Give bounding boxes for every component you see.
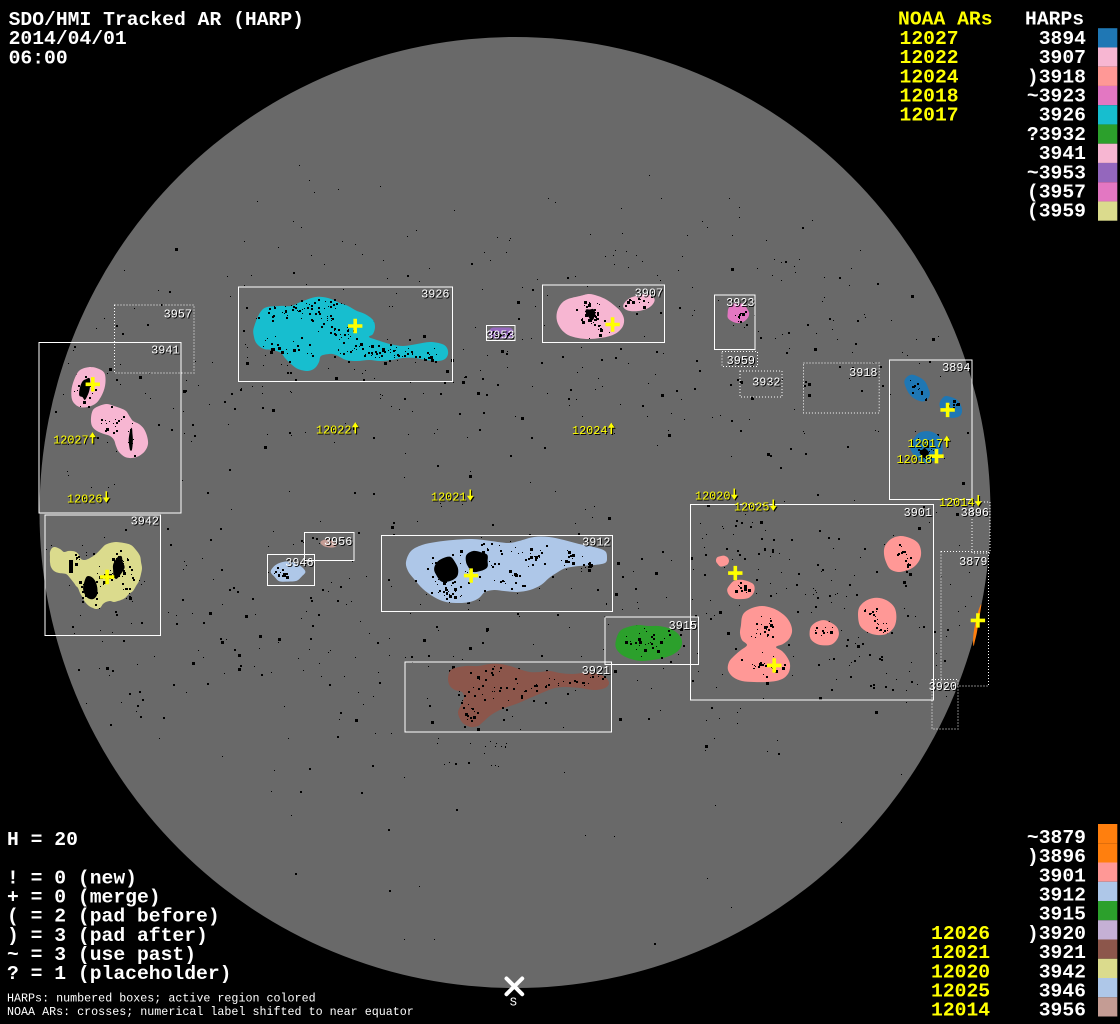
- svg-text:3920: 3920: [929, 680, 957, 694]
- svg-text:12022: 12022: [316, 424, 351, 438]
- svg-text:3932: 3932: [752, 376, 780, 390]
- svg-text:12014: 12014: [931, 1000, 990, 1022]
- svg-text:S: S: [510, 996, 517, 1010]
- svg-text:3907: 3907: [635, 287, 663, 301]
- svg-text:3956: 3956: [1039, 1000, 1086, 1022]
- svg-text:3894: 3894: [942, 361, 970, 375]
- svg-text:12021: 12021: [431, 491, 466, 505]
- svg-text:06:00: 06:00: [9, 47, 68, 69]
- svg-text:3959: 3959: [727, 354, 755, 368]
- svg-text:3915: 3915: [669, 619, 697, 633]
- svg-text:12027: 12027: [53, 434, 88, 448]
- svg-text:3912: 3912: [582, 536, 610, 550]
- svg-text:3956: 3956: [324, 535, 352, 549]
- svg-text:3942: 3942: [131, 515, 159, 529]
- svg-text:12017: 12017: [900, 105, 959, 127]
- svg-text:12017: 12017: [908, 437, 943, 451]
- svg-text:3953: 3953: [486, 329, 514, 343]
- svg-text:12026: 12026: [67, 492, 102, 506]
- svg-text:(3959: (3959: [1027, 201, 1086, 223]
- svg-text:12025: 12025: [734, 501, 769, 515]
- svg-text:3879: 3879: [959, 555, 987, 569]
- svg-text:12024: 12024: [572, 424, 607, 438]
- svg-text:3926: 3926: [421, 288, 449, 302]
- svg-text:NOAA ARs: crosses; numerical l: NOAA ARs: crosses; numerical label shift…: [7, 1005, 414, 1019]
- svg-text:3921: 3921: [582, 664, 610, 678]
- svg-text:3923: 3923: [726, 296, 754, 310]
- svg-text:3957: 3957: [164, 308, 192, 322]
- svg-text:12020: 12020: [695, 490, 730, 504]
- svg-text:? = 1 (placeholder): ? = 1 (placeholder): [7, 963, 231, 985]
- svg-text:3901: 3901: [904, 506, 932, 520]
- svg-text:12018: 12018: [897, 453, 932, 467]
- svg-text:3918: 3918: [849, 366, 877, 380]
- svg-text:3946: 3946: [285, 556, 313, 570]
- svg-text:H = 20: H = 20: [7, 829, 78, 851]
- svg-text:3941: 3941: [151, 344, 179, 358]
- svg-text:12014: 12014: [939, 496, 974, 510]
- svg-text:HARPs: numbered boxes; active: HARPs: numbered boxes; active region col…: [7, 992, 316, 1006]
